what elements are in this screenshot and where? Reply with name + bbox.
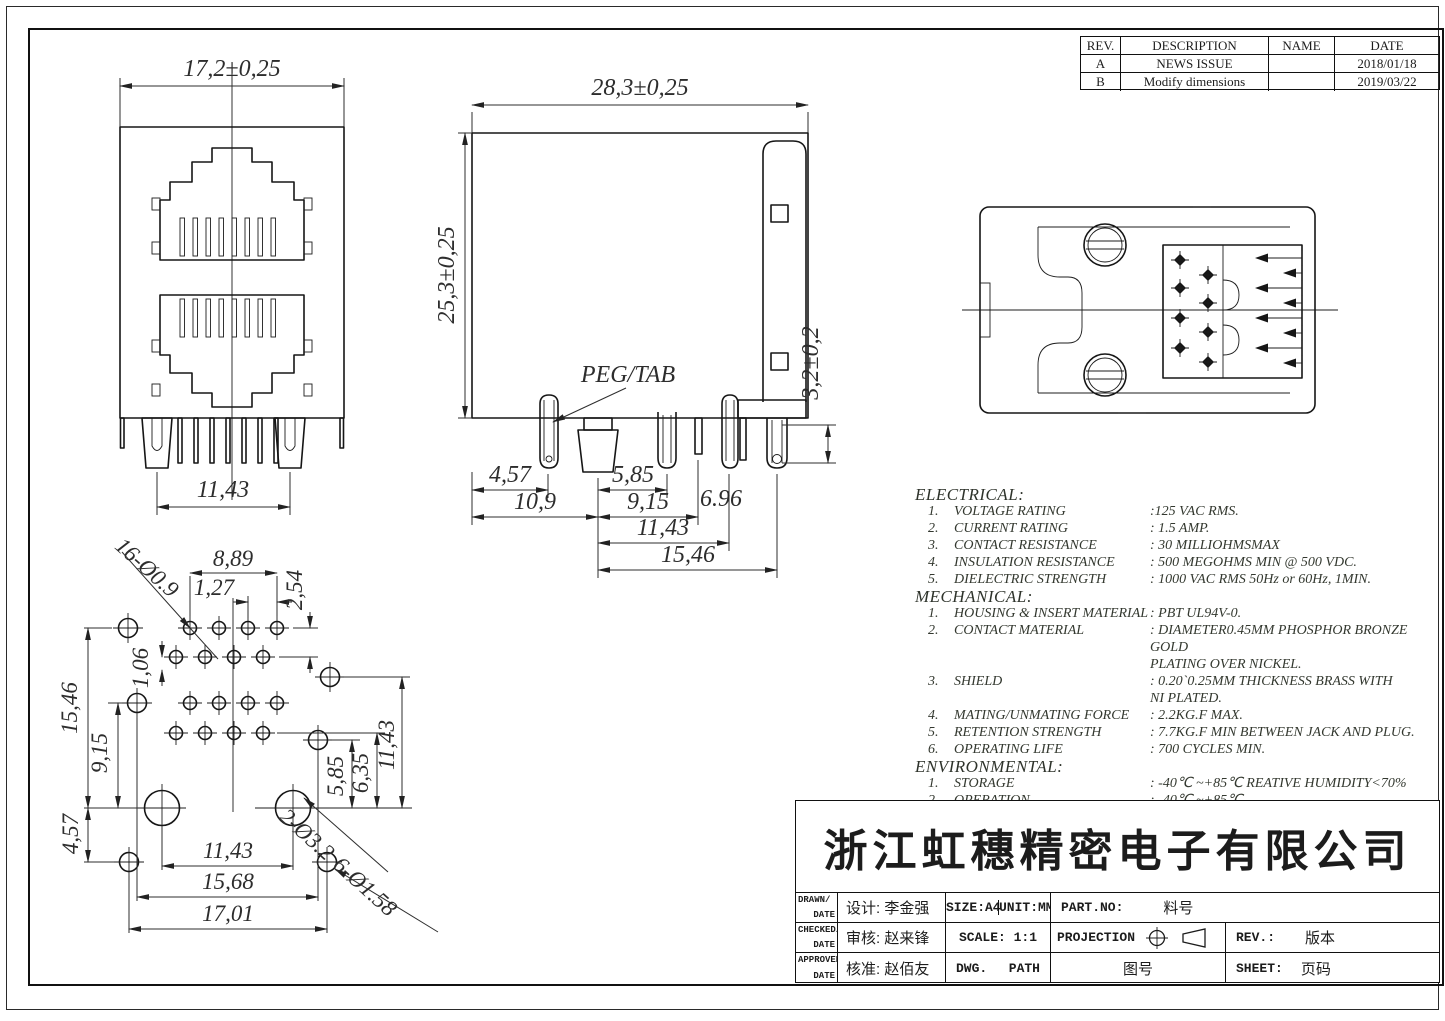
front-pins xyxy=(178,418,278,463)
dwg-no-value: 图号 xyxy=(1123,958,1153,979)
title-block-row-3: APPROVED/ DATE 核准: 赵佰友 DWG. PATH 图号 SHEE… xyxy=(796,953,1439,983)
footprint-view-drawing: 8,89 1,27 2,54 1,06 16-Ø0.9 15,46 9,15 4… xyxy=(50,540,480,950)
dim-fp-915: 9,15 xyxy=(87,733,112,773)
side-pin-round xyxy=(658,412,676,468)
rev-header-rev: REV. xyxy=(1081,37,1121,55)
approved-label: APPROVED/ xyxy=(798,955,838,965)
front-view-drawing: 17,2±0,25 11,43 xyxy=(60,50,400,530)
spec-item-value: : 30 MILLIOHMSMAX xyxy=(1150,537,1423,554)
projection-cell: PROJECTION xyxy=(1051,923,1226,952)
callout-fp-mid-holes: 6-Ø1.58 xyxy=(328,852,402,922)
spec-item-value: : 1000 VAC RMS 50Hz or 60Hz, 1MIN. xyxy=(1150,571,1423,588)
size-unit-cell: SIZE:A4UNIT:MM. xyxy=(946,893,1051,922)
spec-item-value: : 1.5 AMP. xyxy=(1150,520,1423,537)
title-block-row-2: CHECKED/ DATE 审核: 赵来锋 SCALE: 1:1 PROJECT… xyxy=(796,923,1439,953)
dim-fp-106: 1,06 xyxy=(128,647,153,688)
dim-fp-585: 5,85 xyxy=(323,756,348,796)
spec-item-num: 1. xyxy=(915,775,954,792)
spec-item-num: 2. xyxy=(915,622,954,639)
spec-item-name: RETENTION STRENGTH xyxy=(954,724,1150,741)
spec-mechanical-title: MECHANICAL: xyxy=(915,588,1423,605)
dim-front-pins-span: 11,43 xyxy=(197,477,249,503)
spec-item-value: : 500 MEGOHMS MIN @ 500 VDC. xyxy=(1150,554,1423,571)
spec-item-value: : 700 CYCLES MIN. xyxy=(1150,741,1423,758)
dim-fp-254: 2,54 xyxy=(282,570,307,610)
title-block: 浙江虹穗精密电子有限公司 DRAWN/ DATE 设计: 李金强 SIZE:A4… xyxy=(795,800,1440,983)
spec-item-num: 5. xyxy=(915,724,954,741)
rev-row-b-description: Modify dimensions xyxy=(1121,73,1269,91)
spec-item-value: : PBT UL94V-0. xyxy=(1150,605,1423,622)
spec-item-value: : 0.20`0.25MM THICKNESS BRASS WITH NI PL… xyxy=(1150,673,1423,707)
spec-item-name: VOLTAGE RATING xyxy=(954,503,1150,520)
sheet-cell: SHEET: 页码 xyxy=(1226,953,1439,983)
dim-side-457: 4,57 xyxy=(489,462,532,488)
drawn-label: DRAWN/ xyxy=(798,895,830,905)
spec-item-value: : -40℃ ~+85℃ REATIVE HUMIDITY<70% xyxy=(1150,775,1423,792)
rear-contact-fingers xyxy=(1255,251,1302,370)
spec-item-num: 5. xyxy=(915,571,954,588)
title-block-row-1: DRAWN/ DATE 设计: 李金强 SIZE:A4UNIT:MM. PART… xyxy=(796,893,1439,923)
front-upper-port-contacts xyxy=(180,218,276,256)
unit-label: UNIT:MM. xyxy=(998,900,1050,915)
rev-header-name: NAME xyxy=(1269,37,1335,55)
projection-label: PROJECTION xyxy=(1057,930,1135,945)
spec-item-value: : DIAMETER0.45MM PHOSPHOR BRONZE GOLD PL… xyxy=(1150,622,1423,673)
drawing-sheet: 17,2±0,25 11,43 28,3±0,25 xyxy=(0,0,1445,1021)
spec-item-name: MATING/UNMATING FORCE xyxy=(954,707,1150,724)
path-label: PATH xyxy=(1009,961,1040,976)
rear-view-drawing xyxy=(950,185,1350,435)
spec-item-name: DIELECTRIC STRENGTH xyxy=(954,571,1150,588)
rear-screw-top xyxy=(1084,224,1126,266)
dwg-no-cell: 图号 xyxy=(1051,953,1226,983)
front-board-lock-right xyxy=(275,418,305,468)
spec-item-value: : 2.2KG.F MAX. xyxy=(1150,707,1423,724)
dim-fp-635: 6,35 xyxy=(348,753,373,793)
side-peg-right xyxy=(722,395,738,468)
spec-item-name: INSULATION RESISTANCE xyxy=(954,554,1150,571)
dim-side-585: 5,85 xyxy=(612,462,654,488)
dim-side-1546: 15,46 xyxy=(661,542,715,568)
drawn-date-label: DATE xyxy=(813,910,835,920)
spec-item-value: :125 VAC RMS. xyxy=(1150,503,1423,520)
dim-fp-457: 4,57 xyxy=(58,812,83,854)
sheet-value: 页码 xyxy=(1301,958,1331,979)
checker-cell: 审核: 赵来锋 xyxy=(838,923,946,952)
rev-label: REV.: xyxy=(1236,930,1275,945)
dim-side-915: 9,15 xyxy=(627,489,669,515)
spec-item-name: CURRENT RATING xyxy=(954,520,1150,537)
spec-item-num: 4. xyxy=(915,707,954,724)
dim-fp-127: 1,27 xyxy=(194,575,236,600)
callout-fp-small-holes: 16-Ø0.9 xyxy=(110,533,184,603)
front-lower-port-contacts xyxy=(180,299,276,337)
checked-date-label: DATE xyxy=(813,940,835,950)
rear-contact-block xyxy=(1163,245,1302,378)
rev-value: 版本 xyxy=(1305,927,1335,948)
side-view-drawing: 28,3±0,25 25,3±0,25 PEG/TAB xyxy=(430,60,850,590)
rev-row-a-rev: A xyxy=(1081,55,1121,73)
spec-item-num: 1. xyxy=(915,503,954,520)
dim-fp-889: 8,89 xyxy=(213,546,254,571)
dwg-path-cell: DWG. PATH xyxy=(946,953,1051,983)
spec-environmental-title: ENVIRONMENTAL: xyxy=(915,758,1423,775)
company-name: 浙江虹穗精密电子有限公司 xyxy=(796,801,1439,893)
rev-row-b-rev: B xyxy=(1081,73,1121,91)
checked-label-cell: CHECKED/ DATE xyxy=(796,923,838,952)
rev-row-b-name xyxy=(1269,73,1335,91)
approved-date-label: DATE xyxy=(813,971,835,981)
dim-side-1143: 11,43 xyxy=(637,515,689,541)
spec-item-num: 6. xyxy=(915,741,954,758)
dim-fp-1143-right: 11,43 xyxy=(374,720,399,770)
rev-row-a-description: NEWS ISSUE xyxy=(1121,55,1269,73)
rev-header-date: DATE xyxy=(1335,37,1439,55)
dim-side-696: 6.96 xyxy=(700,486,742,512)
rev-header-description: DESCRIPTION xyxy=(1121,37,1269,55)
dwg-label: DWG. xyxy=(956,961,987,976)
projection-symbol-icon xyxy=(1145,926,1209,950)
approver-cell: 核准: 赵佰友 xyxy=(838,953,946,983)
spec-electrical-title: ELECTRICAL: xyxy=(915,486,1423,503)
approved-label-cell: APPROVED/ DATE xyxy=(796,953,838,983)
part-no-label: PART.NO: xyxy=(1061,900,1123,915)
side-peg-left xyxy=(540,395,558,468)
dim-fp-1143-bottom: 11,43 xyxy=(203,838,253,863)
sheet-label: SHEET: xyxy=(1236,961,1283,976)
dim-side-32: 3,2±0,2 xyxy=(798,326,824,400)
spec-item-name: CONTACT MATERIAL xyxy=(954,622,1150,639)
spec-item-name: SHIELD xyxy=(954,673,1150,690)
spec-item-name: OPERATING LIFE xyxy=(954,741,1150,758)
dim-fp-1568: 15,68 xyxy=(202,869,254,894)
checked-label: CHECKED/ xyxy=(798,925,838,935)
callout-fp-big-holes: 2-Ø3.2 xyxy=(275,804,340,866)
dim-side-height: 25,3±0,25 xyxy=(434,226,460,323)
scale-cell: SCALE: 1:1 xyxy=(946,923,1051,952)
dim-fp-1546: 15,46 xyxy=(57,682,82,734)
dim-side-109: 10,9 xyxy=(514,489,556,515)
spec-item-name: HOUSING & INSERT MATERIAL xyxy=(954,605,1150,622)
rev-row-b-date: 2019/03/22 xyxy=(1335,73,1439,91)
spec-item-num: 4. xyxy=(915,554,954,571)
front-board-lock-left xyxy=(142,418,172,468)
part-no-value: 料号 xyxy=(1163,897,1193,918)
dim-side-width: 28,3±0,25 xyxy=(591,75,688,101)
dim-front-width: 17,2±0,25 xyxy=(183,56,280,82)
spec-item-num: 3. xyxy=(915,673,954,690)
spec-item-num: 2. xyxy=(915,520,954,537)
rear-screw-bottom xyxy=(1084,354,1126,396)
rev-row-a-name xyxy=(1269,55,1335,73)
spec-item-value: : 7.7KG.F MIN BETWEEN JACK AND PLUG. xyxy=(1150,724,1423,741)
size-label: SIZE:A4 xyxy=(946,900,998,915)
spec-item-num: 3. xyxy=(915,537,954,554)
rev-row-a-date: 2018/01/18 xyxy=(1335,55,1439,73)
drawn-label-cell: DRAWN/ DATE xyxy=(796,893,838,922)
spec-item-num: 1. xyxy=(915,605,954,622)
spec-item-name: CONTACT RESISTANCE xyxy=(954,537,1150,554)
spec-item-name: STORAGE xyxy=(954,775,1150,792)
peg-tab-label: PEG/TAB xyxy=(580,362,676,388)
dim-fp-1701: 17,01 xyxy=(202,901,254,926)
rev-cell: REV.: 版本 xyxy=(1226,923,1439,952)
revision-table: REV. DESCRIPTION NAME DATE A NEWS ISSUE … xyxy=(1080,36,1440,90)
designer-cell: 设计: 李金强 xyxy=(838,893,946,922)
spec-block: ELECTRICAL: 1.VOLTAGE RATING:125 VAC RMS… xyxy=(915,486,1423,809)
rear-contact-dots xyxy=(1171,251,1217,371)
part-no-cell: PART.NO: 料号 xyxy=(1051,893,1439,922)
